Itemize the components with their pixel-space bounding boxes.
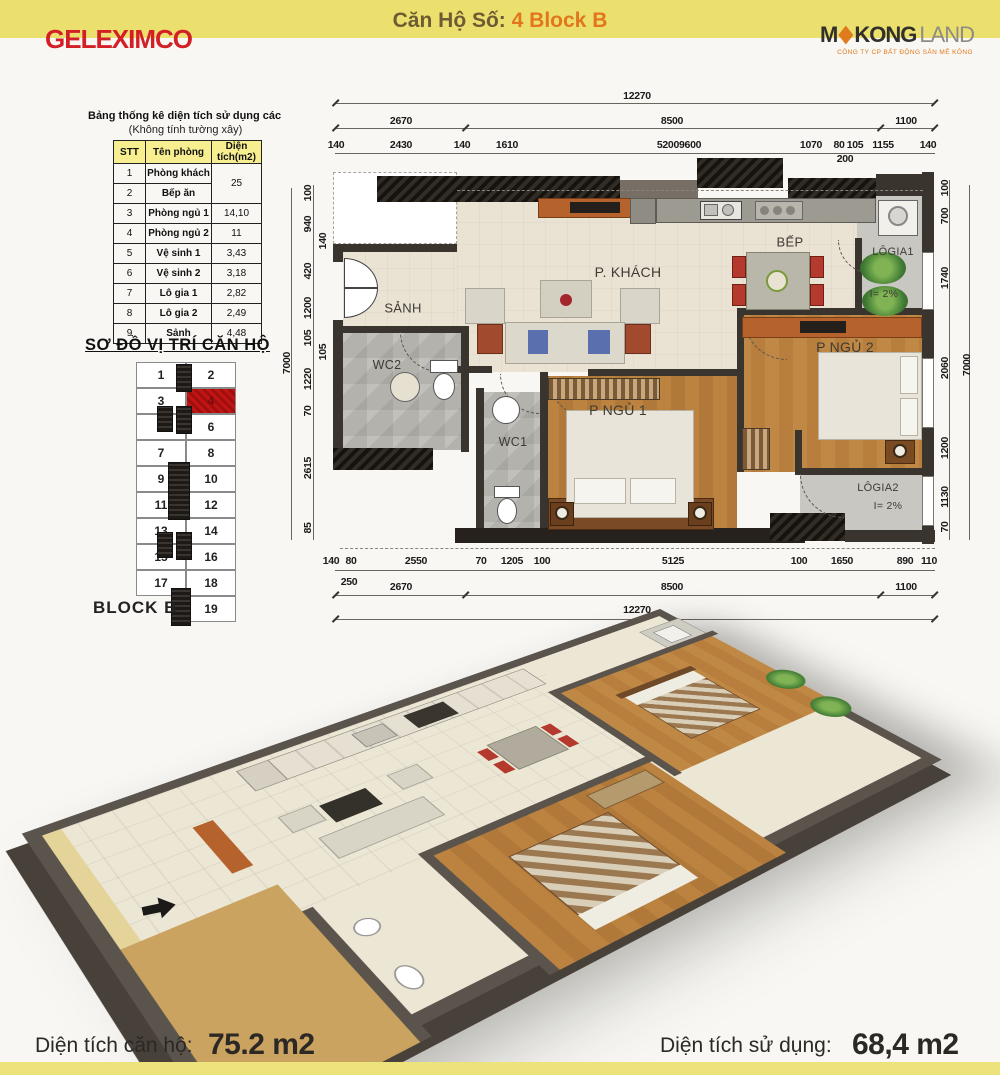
wash-basin [390, 372, 420, 402]
dim-label: 52009600 [657, 140, 701, 151]
wall-segment [333, 448, 433, 470]
side-table [625, 324, 651, 354]
table-header-row: STT Tên phòng Diện tích(m2) [114, 141, 262, 164]
cell-name: Lô gia 2 [146, 304, 212, 324]
dimension-line [335, 570, 935, 571]
unit-cell: 19 [186, 596, 236, 622]
wall-segment [697, 158, 783, 188]
balcony-dash-line [457, 190, 923, 191]
lamp [893, 444, 907, 458]
elevator-core-icon [168, 462, 190, 520]
wall-segment [588, 369, 740, 376]
col-area: Diện tích(m2) [212, 141, 262, 164]
wall-segment [922, 428, 934, 476]
room-label-logia1: LÔGIA1 [872, 246, 914, 258]
burner [786, 206, 795, 215]
area-table-title: Bảng thống kê diện tích sử dụng các phò [88, 110, 283, 122]
dim-label: 100 [940, 180, 951, 197]
wardrobe [742, 428, 770, 470]
dim-label: 140 [920, 140, 937, 151]
dim-label: 100 [303, 185, 314, 202]
area-table: STT Tên phòng Diện tích(m2) 1 Phòng khác… [113, 140, 262, 344]
dim-tick [931, 124, 938, 131]
room-label-wc1: WC1 [499, 435, 528, 449]
cell-area: 3,43 [212, 244, 262, 264]
dim-label: 1130 [940, 486, 951, 508]
cell-name: Phòng ngủ 1 [146, 204, 212, 224]
cell-area: 11 [212, 224, 262, 244]
logo-m: M [820, 22, 837, 48]
page: GELEXIMCO Căn Hộ Số: 4 Block B M KONG LA… [0, 0, 1000, 1075]
room-label-kitchen: BẾP [777, 235, 804, 250]
room-label-living: P. KHÁCH [595, 264, 662, 280]
elevator-core-icon [176, 532, 192, 560]
unit-cell-highlighted: 4 [186, 388, 236, 414]
dim-label: 85 [303, 522, 314, 533]
armchair [465, 288, 505, 324]
dim-label: 2670 [390, 582, 412, 593]
dim-label: 2550 [405, 556, 427, 567]
table-row: 7 Lô gia 1 2,82 [114, 284, 262, 304]
iso-toilet [388, 961, 430, 993]
wall-segment [455, 528, 805, 543]
kitchen-cabinet [630, 198, 656, 224]
cell-name: Vệ sinh 2 [146, 264, 212, 284]
dim-tick [931, 591, 938, 598]
dim-label: 890 [897, 556, 914, 567]
wash-basin [492, 396, 520, 424]
footer-left-label: Diện tích căn hộ: [35, 1034, 193, 1058]
dim-label: 7000 [282, 352, 293, 374]
wall-segment [922, 526, 934, 544]
cell-stt: 6 [114, 264, 146, 284]
tv [800, 321, 846, 333]
logo-land: LAND [919, 22, 974, 48]
table-row: 4 Phòng ngủ 2 11 [114, 224, 262, 244]
dim-label: 1610 [496, 140, 518, 151]
wall-segment [333, 320, 343, 450]
dimension-line [313, 185, 314, 540]
dim-label: 1200 [940, 437, 951, 459]
dim-label: 1155 [872, 140, 894, 151]
location-diagram-title: SƠ ĐỒ VỊ TRÍ CĂN HỘ [85, 336, 270, 355]
dim-label: 1740 [940, 267, 951, 289]
dim-label: 70 [940, 521, 951, 532]
dim-label: 140 [454, 140, 471, 151]
dining-chair [732, 284, 746, 306]
wall-segment [770, 513, 845, 541]
window [922, 252, 934, 310]
table-row: 1 Phòng khách 25 [114, 164, 262, 184]
dim-label: 250 [341, 577, 358, 588]
dim-label: 1070 [800, 140, 822, 151]
dining-chair [810, 256, 824, 278]
slope-label: I= 2% [870, 288, 899, 300]
dim-label: 140 [323, 556, 340, 567]
isometric-apartment [22, 609, 942, 1075]
dim-label: 140 [318, 233, 329, 250]
mekong-diamond-icon [838, 26, 853, 45]
cell-stt: 5 [114, 244, 146, 264]
unit-cell: 6 [186, 414, 236, 440]
lamp [555, 506, 569, 520]
dim-label: 1100 [895, 582, 917, 593]
dining-chair [810, 284, 824, 306]
isometric-3d-view [130, 622, 880, 1037]
toilet-tank [494, 486, 520, 498]
elevator-core-icon [157, 532, 173, 558]
dim-tick [931, 99, 938, 106]
cell-name: Phòng khách [146, 164, 212, 184]
dim-label: 5125 [662, 556, 684, 567]
dim-label: 105 [847, 140, 864, 151]
cell-area: 3,18 [212, 264, 262, 284]
dim-label: 100 [534, 556, 551, 567]
wardrobe [548, 378, 660, 400]
unit-cell: 12 [186, 492, 236, 518]
room-label-logia2: LÔGIA2 [857, 482, 899, 494]
table-row: 5 Vệ sinh 1 3,43 [114, 244, 262, 264]
dim-label: 940 [303, 216, 314, 233]
cell-area: 14,10 [212, 204, 262, 224]
footer-left-value: 75.2 m2 [208, 1028, 315, 1062]
dim-label: 105 [318, 344, 329, 361]
wall-segment [876, 174, 924, 196]
tv [570, 202, 620, 213]
dim-label: 7000 [962, 354, 973, 376]
dim-label: 2430 [390, 140, 412, 151]
cell-stt: 4 [114, 224, 146, 244]
room-label-bed2: P NGỦ 2 [816, 339, 874, 355]
window [922, 358, 934, 428]
cell-stt: 1 [114, 164, 146, 184]
toilet-tank [430, 360, 458, 373]
cell-name: Lô gia 1 [146, 284, 212, 304]
footer-right-label: Diện tích sử dụng: [660, 1034, 832, 1058]
cell-name: Phòng ngủ 2 [146, 224, 212, 244]
sink-basin [722, 204, 734, 216]
cell-stt: 8 [114, 304, 146, 324]
armchair [620, 288, 660, 324]
mekong-land-logo: M KONG LAND CÔNG TY CP BẤT ĐỘNG SẢN MÊ K… [820, 22, 990, 56]
toilet-bowl [497, 498, 517, 524]
cell-stt: 3 [114, 204, 146, 224]
dimension-line [335, 128, 935, 129]
washing-machine-door [888, 206, 908, 226]
room-label-bed1: P NGỦ 1 [589, 402, 647, 418]
dimension-line [335, 103, 935, 104]
dim-label: 200 [837, 154, 854, 165]
table-row: 6 Vệ sinh 2 3,18 [114, 264, 262, 284]
dim-label: 140 [328, 140, 345, 151]
sofa-cushion [528, 330, 548, 354]
dim-label: 100 [791, 556, 808, 567]
pillow [900, 356, 918, 394]
sofa-cushion [588, 330, 610, 354]
cell-area: 2,82 [212, 284, 262, 304]
unit-cell: 10 [186, 466, 236, 492]
elevator-core-icon [157, 406, 173, 432]
side-table [477, 324, 503, 354]
elevator-core-icon [176, 406, 192, 434]
dim-label: 8500 [661, 116, 683, 127]
dim-label: 700 [940, 208, 951, 225]
footer-right-value: 68,4 m2 [852, 1028, 959, 1062]
wall-segment [333, 244, 457, 252]
unit-cell: 2 [186, 362, 236, 388]
unit-cell: 14 [186, 518, 236, 544]
dim-label: 70 [475, 556, 486, 567]
cell-area: 2,49 [212, 304, 262, 324]
table-row: 3 Phòng ngủ 1 14,10 [114, 204, 262, 224]
unit-cell: 16 [186, 544, 236, 570]
wall-segment [795, 430, 802, 475]
dim-label: 1220 [303, 368, 314, 390]
fruit-plate [766, 270, 788, 292]
title-prefix: Căn Hộ Số: [393, 9, 506, 32]
pillow [900, 398, 918, 436]
wall-segment [922, 172, 934, 252]
dim-label: 2615 [303, 457, 314, 479]
wall-segment [461, 326, 469, 452]
window [922, 476, 934, 526]
dim-label: 2670 [390, 116, 412, 127]
dining-chair [732, 256, 746, 278]
lamp [693, 506, 707, 520]
col-stt: STT [114, 141, 146, 164]
logo-tagline: CÔNG TY CP BẤT ĐỘNG SẢN MÊ KÔNG [820, 49, 990, 56]
room-label-wc2: WC2 [373, 358, 402, 372]
pillow [630, 478, 676, 504]
dim-label: 8500 [661, 582, 683, 593]
dim-label: 70 [303, 405, 314, 416]
unit-cell: 18 [186, 570, 236, 596]
table-row: 8 Lô gia 2 2,49 [114, 304, 262, 324]
cell-stt: 2 [114, 184, 146, 204]
dim-label: 1100 [895, 116, 917, 127]
room-label-hall: SẢNH [384, 301, 421, 316]
table-flowers [560, 294, 572, 306]
col-name: Tên phòng [146, 141, 212, 164]
dim-label: 420 [303, 263, 314, 280]
dim-label: 80 [833, 140, 844, 151]
footer-band [0, 1062, 1000, 1075]
dim-label: 110 [921, 556, 937, 567]
dim-label: 2060 [940, 357, 951, 379]
toilet-bowl [433, 373, 455, 400]
wall-segment [333, 244, 343, 262]
unit-cell: 8 [186, 440, 236, 466]
elevator-core-icon [176, 364, 192, 392]
cell-stt: 7 [114, 284, 146, 304]
dim-label: 1650 [831, 556, 853, 567]
slope-label: I= 2% [874, 500, 903, 512]
dim-tick [931, 615, 938, 622]
cell-name: Vệ sinh 1 [146, 244, 212, 264]
sink-basin [704, 204, 718, 216]
dim-label: 1200 [303, 297, 314, 319]
dim-label: 80 [345, 556, 356, 567]
cell-name: Bếp ăn [146, 184, 212, 204]
wall-segment [540, 372, 548, 534]
dash-line [340, 548, 935, 549]
area-table-subtitle: (Không tính tường xây) [88, 124, 283, 136]
pillow [574, 478, 626, 504]
dim-label: 12270 [623, 91, 651, 102]
burner [760, 206, 769, 215]
iso-basin [348, 914, 386, 939]
cell-area-merged: 25 [212, 164, 262, 204]
block-label: BLOCK B [93, 598, 177, 618]
wall-segment [476, 388, 484, 536]
burner [773, 206, 782, 215]
dimension-line [335, 595, 935, 596]
logo-kong: KONG [854, 22, 916, 48]
title-value: 4 Block B [512, 9, 608, 32]
wall-segment [922, 310, 934, 358]
dim-label: 1205 [501, 556, 523, 567]
dim-label: 105 [303, 330, 314, 347]
